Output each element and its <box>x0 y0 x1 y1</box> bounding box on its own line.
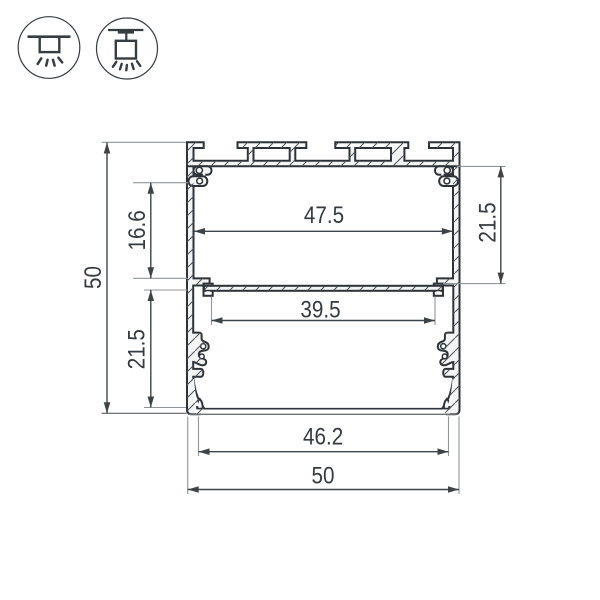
svg-text:46.2: 46.2 <box>303 423 343 450</box>
svg-text:39.5: 39.5 <box>300 296 340 323</box>
svg-text:50: 50 <box>80 266 107 289</box>
svg-text:21.5: 21.5 <box>474 202 501 242</box>
svg-text:21.5: 21.5 <box>123 329 150 369</box>
svg-text:16.6: 16.6 <box>123 210 150 250</box>
svg-text:50: 50 <box>312 462 335 489</box>
svg-text:47.5: 47.5 <box>304 202 344 229</box>
